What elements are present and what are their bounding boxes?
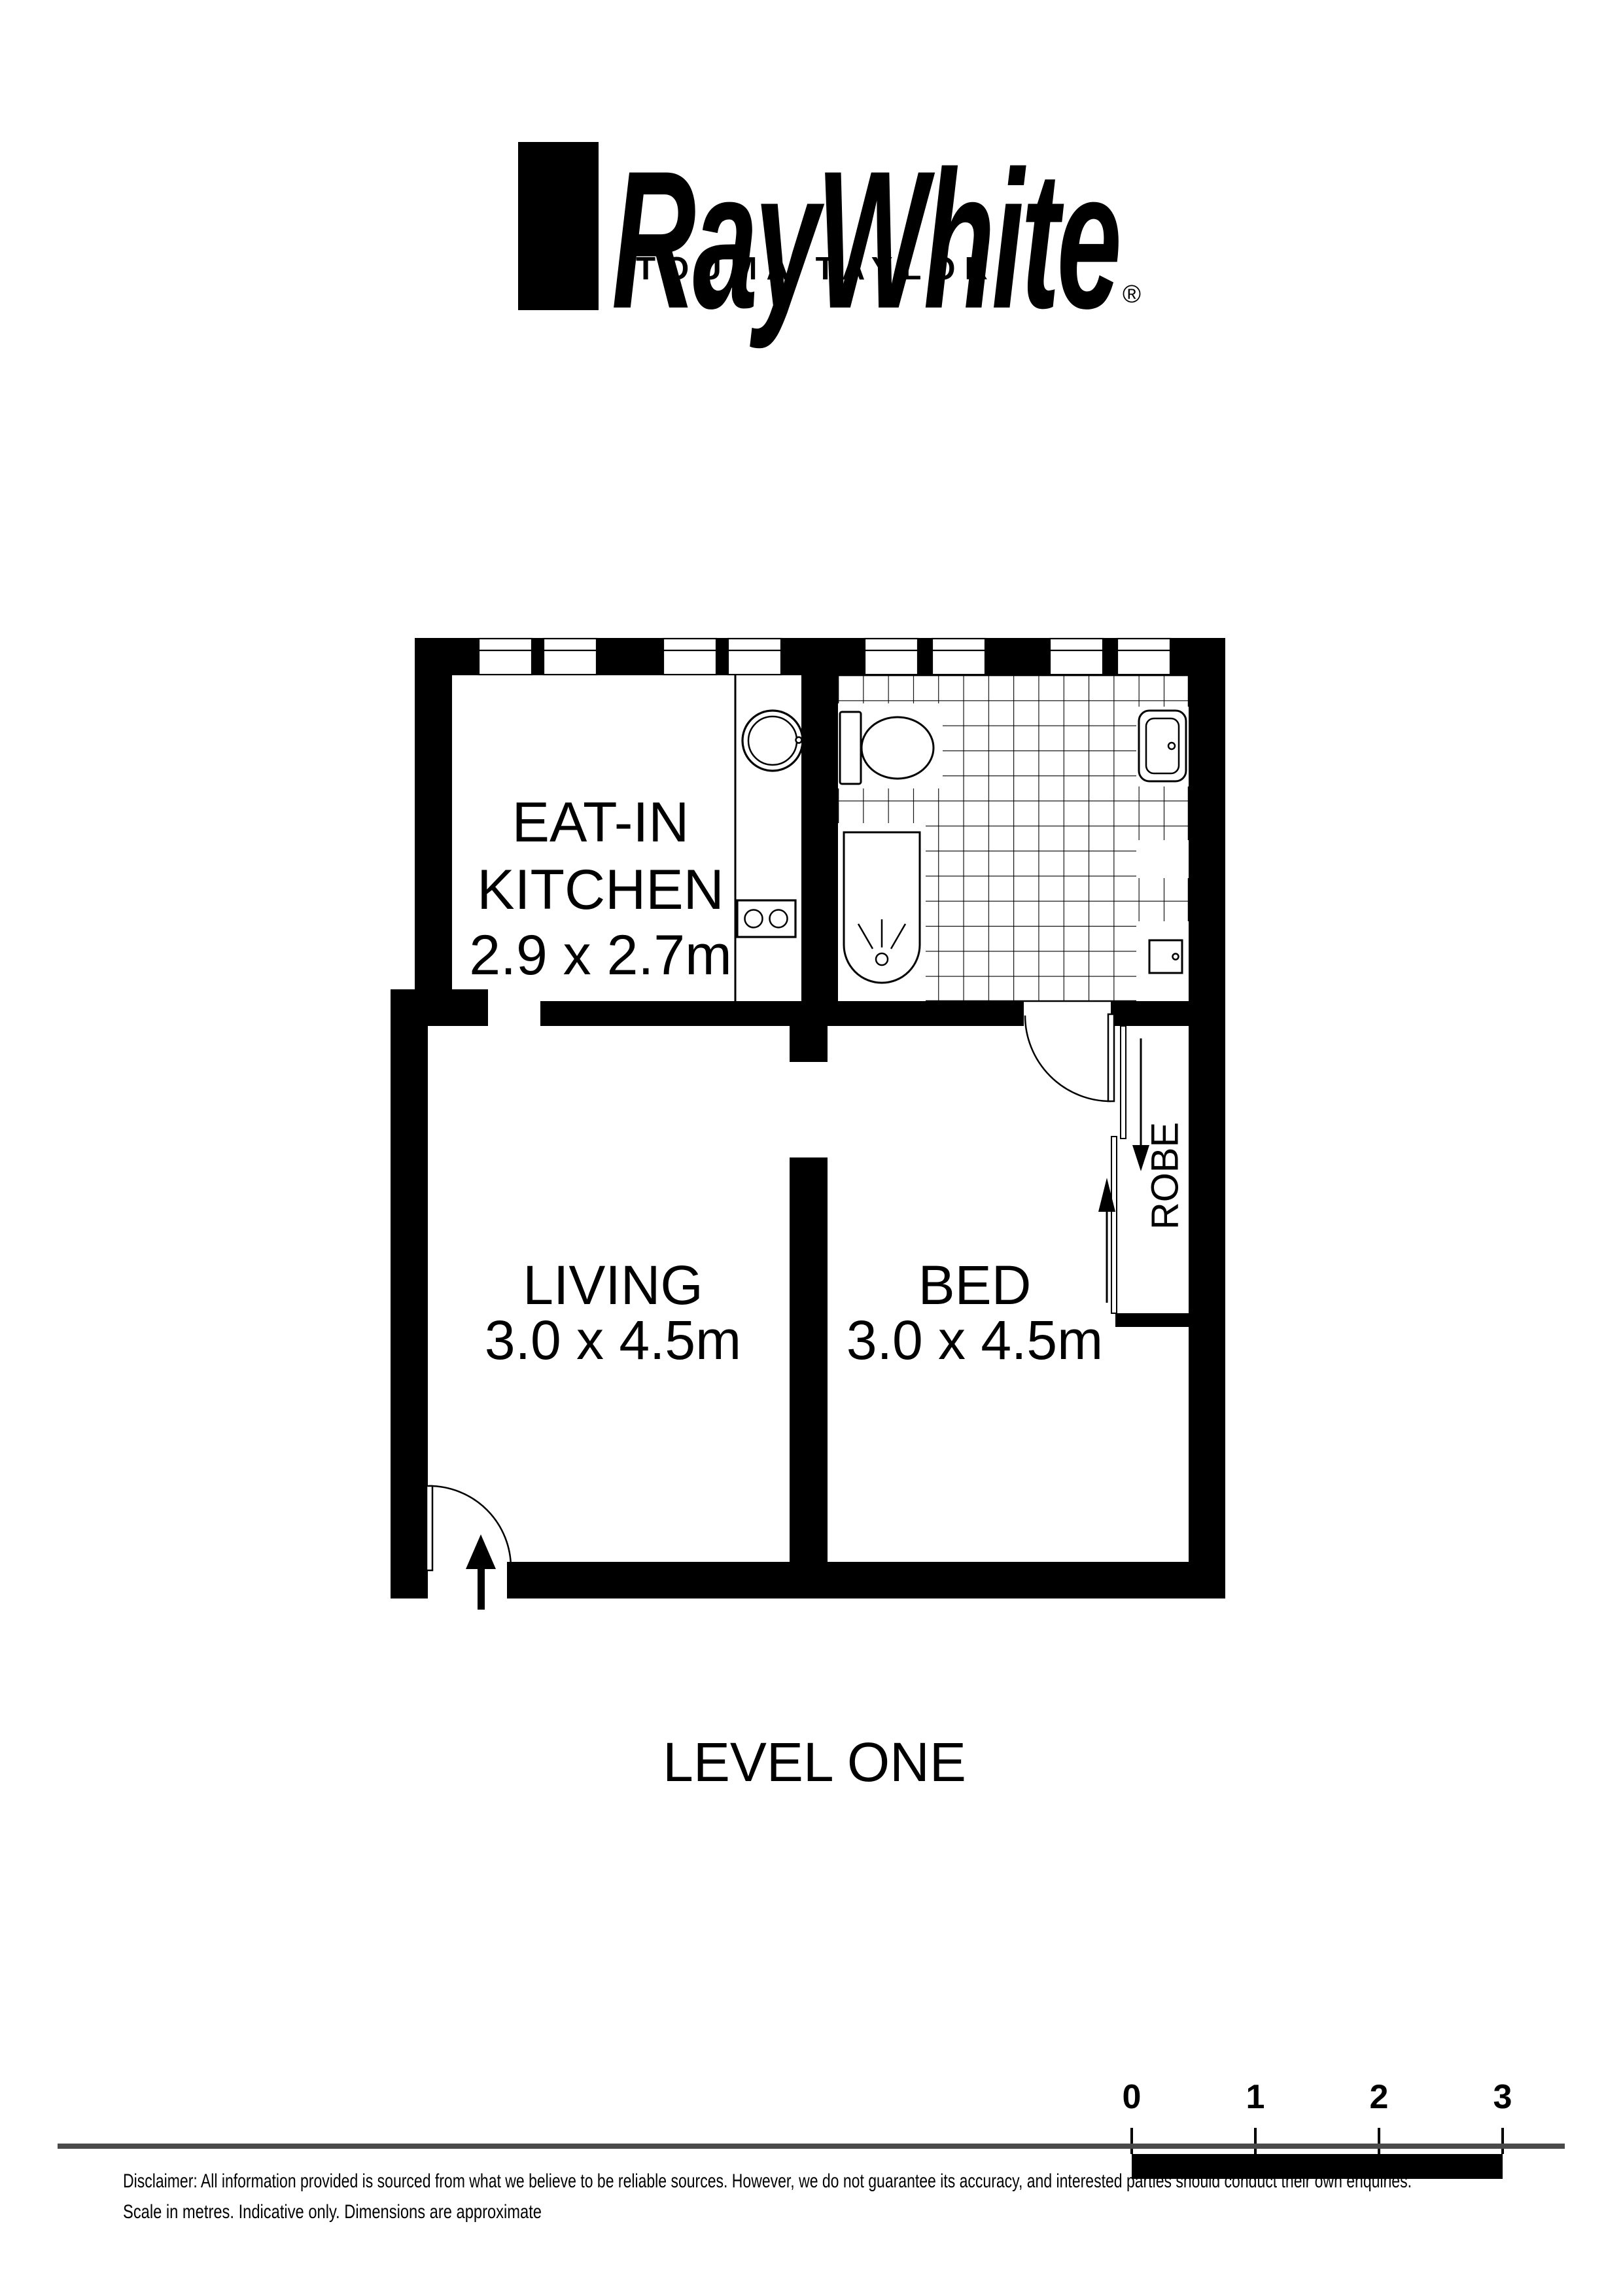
robe-door-rear — [1121, 1026, 1126, 1139]
window — [932, 639, 985, 675]
entry-door-leaf — [427, 1486, 432, 1570]
floor-plan: EAT-IN KITCHEN 2.9 x 2.7m LIVING 3.0 x 4… — [391, 638, 1225, 1793]
living-dimensions: 3.0 x 4.5m — [485, 1309, 741, 1371]
kitchen-label-line1: EAT-IN — [512, 791, 689, 854]
bathroom-door-swing — [1025, 1016, 1111, 1101]
disclaimer-line-2: Scale in metres. Indicative only. Dimens… — [123, 2201, 542, 2223]
kitchen-label-line2: KITCHEN — [477, 858, 724, 921]
cooktop-icon — [737, 900, 795, 937]
living-label: LIVING — [523, 1254, 703, 1316]
robe-label: ROBE — [1144, 1122, 1187, 1229]
wall-interior-horizontal-right — [1111, 1001, 1189, 1026]
vanity-icon — [1149, 940, 1182, 973]
ray-white-logo-mark-icon — [518, 142, 599, 310]
kitchen-sink-icon — [742, 711, 803, 771]
window — [865, 639, 918, 675]
bed-label: BED — [918, 1254, 1032, 1316]
divider-rule — [58, 2144, 1565, 2149]
wall-robe-bottom — [1115, 1313, 1189, 1327]
wall-top — [415, 638, 1225, 675]
window — [544, 639, 597, 675]
wall-bottom — [507, 1562, 1225, 1598]
brand-header: RayWhite ® TOUMA TAYLOR — [518, 130, 1141, 351]
window — [663, 639, 716, 675]
robe-door-front — [1111, 1137, 1117, 1313]
window — [728, 639, 781, 675]
bathroom-door — [1025, 1014, 1114, 1101]
wall-living-bed-stub — [790, 1026, 828, 1062]
entry-door-swing — [429, 1486, 511, 1568]
bathroom-door-leaf — [1108, 1014, 1114, 1101]
floor-plan-page: RayWhite ® TOUMA TAYLOR — [0, 0, 1623, 2296]
entry-arrow-icon — [466, 1534, 496, 1610]
kitchen-dimensions: 2.9 x 2.7m — [469, 924, 732, 987]
scale-bar: 0 1 2 3 — [1123, 2078, 1512, 2179]
basin-icon — [1139, 711, 1186, 781]
scale-tick-label: 3 — [1493, 2078, 1512, 2116]
office-name: TOUMA TAYLOR — [636, 251, 997, 287]
scale-tick-label: 0 — [1123, 2078, 1142, 2116]
bed-dimensions: 3.0 x 4.5m — [846, 1309, 1103, 1371]
ray-white-logo-text: RayWhite — [612, 130, 1119, 351]
entry-door — [427, 1486, 511, 1570]
wall-left-kitchen — [415, 638, 452, 1026]
scale-tick-label: 2 — [1370, 2078, 1389, 2116]
wall-right — [1189, 638, 1225, 1598]
window — [479, 639, 532, 675]
wall-kitchen-bath-divider — [801, 675, 838, 1026]
toilet-icon — [840, 712, 934, 784]
registered-trademark: ® — [1123, 281, 1141, 308]
shelf-pad — [1136, 840, 1189, 878]
wall-living-bed — [790, 1157, 828, 1562]
window — [1117, 639, 1170, 675]
window — [1050, 639, 1103, 675]
wall-interior-horizontal-left — [540, 1001, 1024, 1026]
scale-tick-label: 1 — [1246, 2078, 1265, 2116]
disclaimer-line-1: Disclaimer: All information provided is … — [123, 2170, 1412, 2192]
level-label: LEVEL ONE — [663, 1731, 966, 1793]
wall-left-living — [391, 989, 428, 1598]
